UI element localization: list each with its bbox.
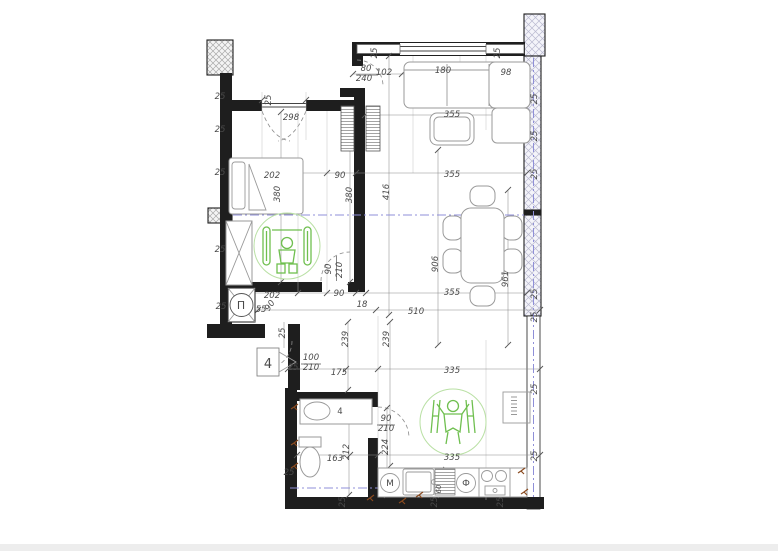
chair-right-1 [502, 216, 522, 240]
dimension-label: 240 [356, 74, 372, 84]
dimension-label: 298 [283, 113, 300, 123]
dimension-label: M [386, 479, 394, 489]
wall-right-divider-cap [524, 210, 541, 215]
dimension-label: 239 [382, 331, 392, 347]
appliance-label-marks [511, 397, 517, 415]
person-with-walker-icon-shape [431, 400, 440, 433]
dimension-label: 25 [530, 384, 540, 395]
page-edge-band [0, 544, 778, 551]
dimension-label: 25 [430, 497, 440, 508]
dimension-label: 60 [435, 484, 443, 493]
dimension-label: 25 [530, 131, 540, 142]
floor-plan: 8024010225251809835525252525252982520238… [0, 0, 778, 559]
dimension-label: 25 [215, 168, 226, 178]
dimension-label: 25 [370, 48, 380, 59]
sofa-chaise [492, 108, 530, 143]
radiator-living [366, 106, 380, 151]
dimension-label: 25 [284, 468, 295, 478]
wall-hall-right [288, 324, 300, 390]
dimension-label: 25 [216, 302, 227, 312]
person-with-walker-icon-shape [446, 432, 460, 444]
chair-bottom [470, 286, 495, 306]
window-living-opening [400, 43, 486, 55]
dimension-label: 355 [444, 110, 460, 120]
dimension-label: 25 [530, 451, 540, 462]
person-with-walker-icon-shape [437, 404, 469, 414]
person-with-walker-icon [431, 400, 475, 444]
dimension-label: 102 [376, 68, 392, 78]
turning-circle-kitchen [420, 389, 486, 455]
dimension-label: 25 [493, 48, 503, 59]
dimension-label: 510 [408, 307, 424, 317]
dimension-label: 25 [338, 497, 348, 508]
dimension-label: 100 [303, 353, 319, 363]
wall-bedroom-bottom-stub [348, 282, 365, 292]
dimension-label: 416 [382, 183, 392, 200]
dimension-label: 25 [288, 363, 299, 373]
chair-top [470, 186, 495, 206]
dimension-label: 25 [264, 95, 274, 106]
dimension-label: 98 [501, 68, 512, 78]
dimension-label: 25 [215, 92, 226, 102]
turning-circle-kitchen-group [420, 389, 486, 455]
person-with-walker-icon-shape [448, 401, 459, 412]
window-sill-right [486, 45, 524, 54]
wall-nib [340, 88, 356, 97]
dimension-label: 380 [273, 186, 283, 202]
wheelchair-icon-shape [282, 238, 293, 249]
dimension-label: 90 [324, 264, 334, 275]
wheelchair-icon-shape [279, 250, 295, 263]
dimension-label: 25 [215, 125, 226, 135]
dimension-label: 906 [431, 255, 441, 272]
dimension-label: 4 [337, 407, 342, 417]
wheelchair-icon [263, 227, 311, 273]
dimension-label: 335 [444, 366, 460, 376]
dimension-label: 90 [381, 414, 392, 424]
chair-right-2 [502, 249, 522, 273]
dimension-label: 210 [303, 363, 319, 373]
dimension-label: 180 [435, 66, 451, 76]
wall-divider [354, 88, 365, 288]
dimension-label: 210 [335, 262, 345, 278]
dimension-label: 25 [278, 328, 288, 339]
dimension-label: 4 [264, 357, 272, 372]
dimension-label: 210 [378, 424, 394, 434]
dimension-label: 25 [530, 312, 540, 323]
radiator-bedroom [341, 106, 354, 151]
dimension-label: 163 [327, 454, 343, 464]
dimension-label: 961 [501, 271, 511, 287]
dimension-label: 202 [264, 291, 280, 301]
dimension-label: 380 [345, 187, 355, 203]
dimension-label: 355 [444, 288, 460, 298]
dimension-label: 335 [444, 453, 460, 463]
toilet-bowl [300, 447, 320, 477]
turning-circle-bedroom [254, 213, 320, 279]
dining-table [461, 208, 504, 283]
dimension-label: 175 [331, 368, 347, 378]
dimension-label: 25 [530, 289, 540, 300]
wall-hatched-top-left-pier [207, 40, 233, 75]
dimension-label: 25 [530, 94, 540, 105]
bathroom-fixtures [299, 399, 372, 477]
dimension-label: 90 [335, 171, 346, 181]
person-with-walker-icon-shape [444, 414, 462, 432]
dimension-label: 25 [215, 245, 226, 255]
dimension-label: 355 [444, 170, 460, 180]
chair-left-1 [443, 216, 463, 240]
dimension-label: 80 [361, 64, 372, 74]
chair-left-2 [443, 249, 463, 273]
wall-hall-bottom [207, 324, 265, 338]
toilet-cistern [299, 437, 321, 447]
person-with-walker-icon-shape [466, 400, 475, 433]
dimension-label: 18 [357, 300, 368, 310]
bed [229, 158, 303, 214]
wall-hatched-top-right-column [524, 14, 545, 56]
dimension-label: 90 [334, 289, 345, 299]
wall-right-lower [527, 316, 540, 509]
dimension-label: 202 [264, 171, 280, 181]
kitchen-fixtures [378, 392, 530, 497]
wheelchair-icon-shape [289, 264, 297, 273]
dimension-label: Ф [462, 479, 470, 489]
wheelchair-turning-circle-bedroom [254, 213, 320, 279]
dimension-label: 239 [341, 331, 351, 347]
dimension-label: 212 [342, 444, 352, 460]
dimension-label: 25 [496, 497, 506, 508]
dimension-label: 224 [381, 439, 391, 455]
dimension-label: 25 [530, 169, 540, 180]
dimension-label: П [237, 299, 245, 312]
